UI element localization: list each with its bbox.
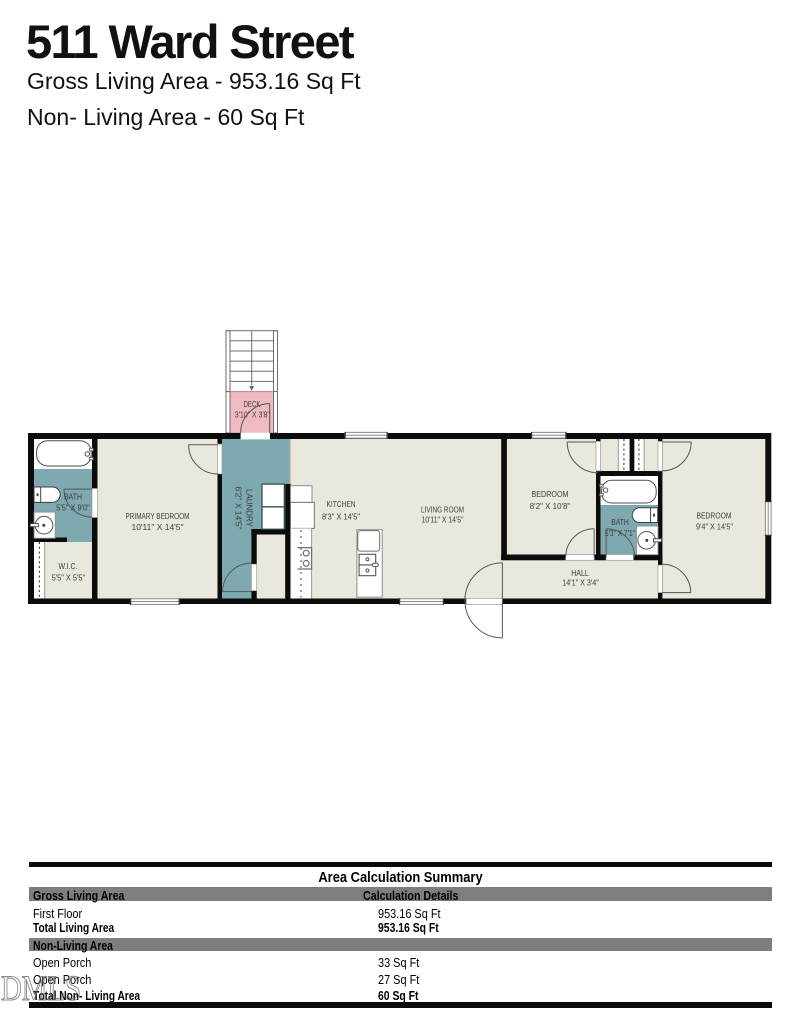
svg-text:KITCHEN: KITCHEN	[327, 500, 356, 509]
svg-text:10'11" X 14'5": 10'11" X 14'5"	[132, 523, 184, 532]
svg-text:5'5" X 9'0": 5'5" X 9'0"	[56, 504, 90, 513]
svg-text:5'5" X 5'5": 5'5" X 5'5"	[52, 573, 86, 582]
svg-text:LIVING ROOM: LIVING ROOM	[421, 506, 464, 515]
svg-text:PRIMARY BEDROOM: PRIMARY BEDROOM	[126, 512, 190, 521]
svg-text:8'3" X 14'5": 8'3" X 14'5"	[322, 513, 360, 522]
svg-text:14'1" X 3'4": 14'1" X 3'4"	[562, 579, 599, 588]
svg-text:9'4" X 14'5": 9'4" X 14'5"	[696, 522, 733, 531]
svg-text:3'10" X 3'8": 3'10" X 3'8"	[235, 411, 270, 420]
svg-text:BATH: BATH	[64, 492, 82, 501]
svg-text:5'3" X 7'1": 5'3" X 7'1"	[605, 529, 635, 538]
svg-text:LAUNDRY: LAUNDRY	[245, 489, 254, 528]
svg-text:W.I.C.: W.I.C.	[59, 562, 78, 571]
svg-text:DECK: DECK	[244, 400, 261, 409]
svg-text:BEDROOM: BEDROOM	[532, 490, 569, 499]
svg-text:HALL: HALL	[571, 569, 589, 578]
svg-text:6'2" X 14'5": 6'2" X 14'5"	[234, 487, 243, 530]
svg-text:10'11" X 14'5": 10'11" X 14'5"	[422, 516, 464, 525]
svg-text:BATH: BATH	[611, 518, 629, 527]
svg-text:8'2" X 10'8": 8'2" X 10'8"	[530, 502, 571, 511]
svg-text:BEDROOM: BEDROOM	[697, 511, 732, 520]
